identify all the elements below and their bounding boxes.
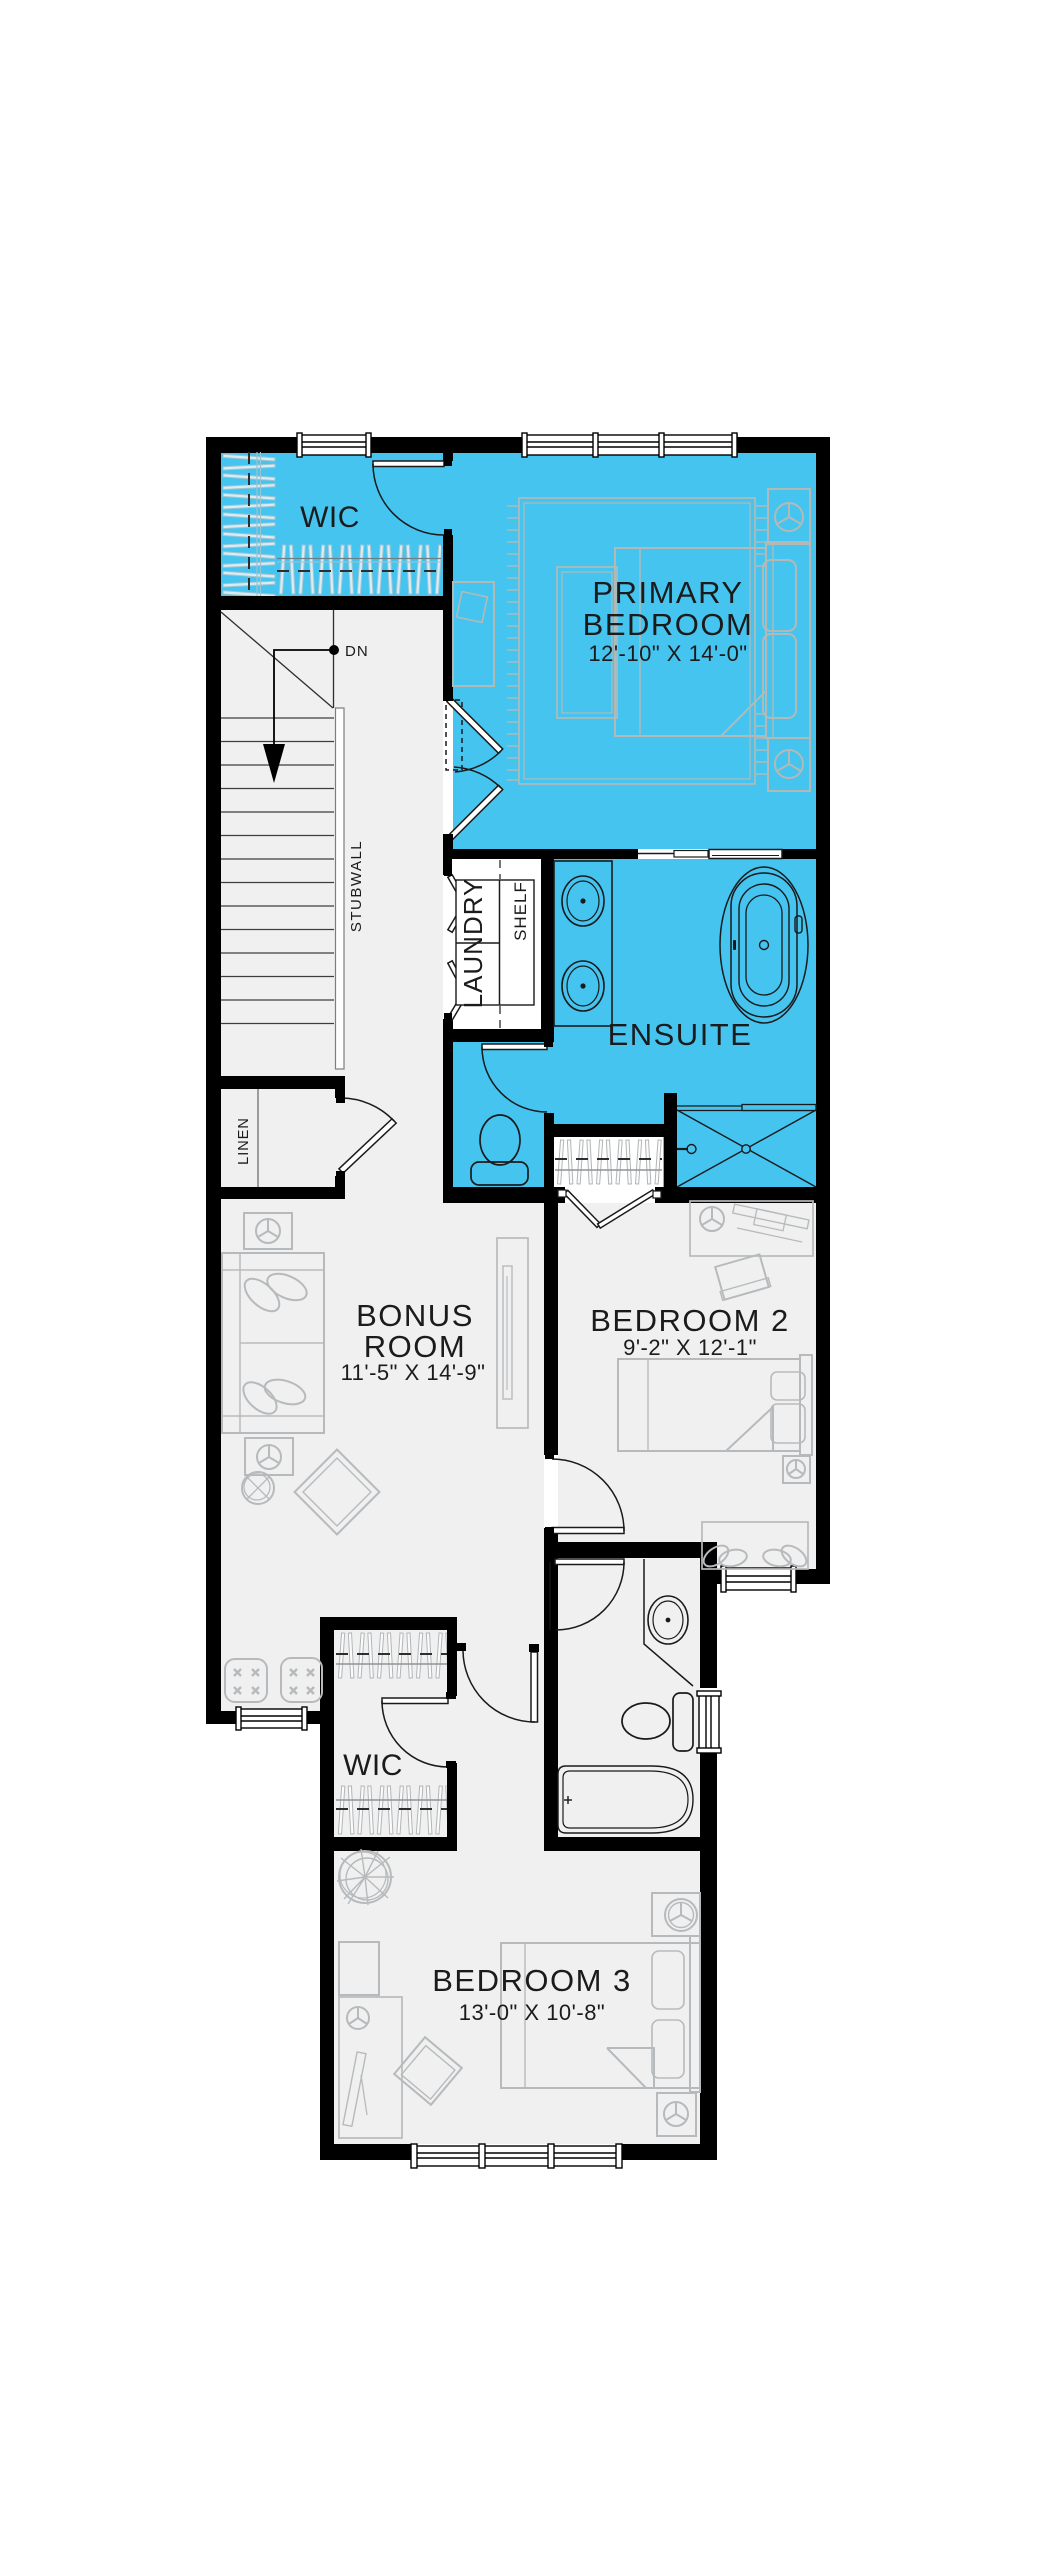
svg-text:WIC: WIC: [300, 501, 360, 534]
svg-text:BEDROOM: BEDROOM: [583, 607, 754, 642]
svg-text:BEDROOM 3: BEDROOM 3: [432, 1963, 632, 1998]
svg-text:ENSUITE: ENSUITE: [608, 1017, 753, 1052]
svg-text:LINEN: LINEN: [236, 1117, 252, 1165]
svg-text:DN: DN: [345, 643, 369, 660]
svg-text:BONUS: BONUS: [356, 1298, 474, 1333]
svg-text:ROOM: ROOM: [364, 1329, 466, 1364]
svg-text:STUBWALL: STUBWALL: [348, 840, 365, 932]
svg-text:9'-2" X 12'-1": 9'-2" X 12'-1": [623, 1335, 757, 1360]
svg-text:11'-5" X 14'-9": 11'-5" X 14'-9": [341, 1360, 486, 1385]
svg-text:WIC: WIC: [343, 1749, 403, 1782]
svg-text:SHELF: SHELF: [511, 881, 530, 941]
svg-text:PRIMARY: PRIMARY: [592, 575, 743, 610]
svg-text:12'-10" X 14'-0": 12'-10" X 14'-0": [588, 641, 747, 666]
svg-text:LAUNDRY: LAUNDRY: [458, 878, 488, 1009]
svg-text:BEDROOM 2: BEDROOM 2: [590, 1303, 790, 1338]
svg-text:13'-0" X 10'-8": 13'-0" X 10'-8": [459, 2000, 605, 2025]
